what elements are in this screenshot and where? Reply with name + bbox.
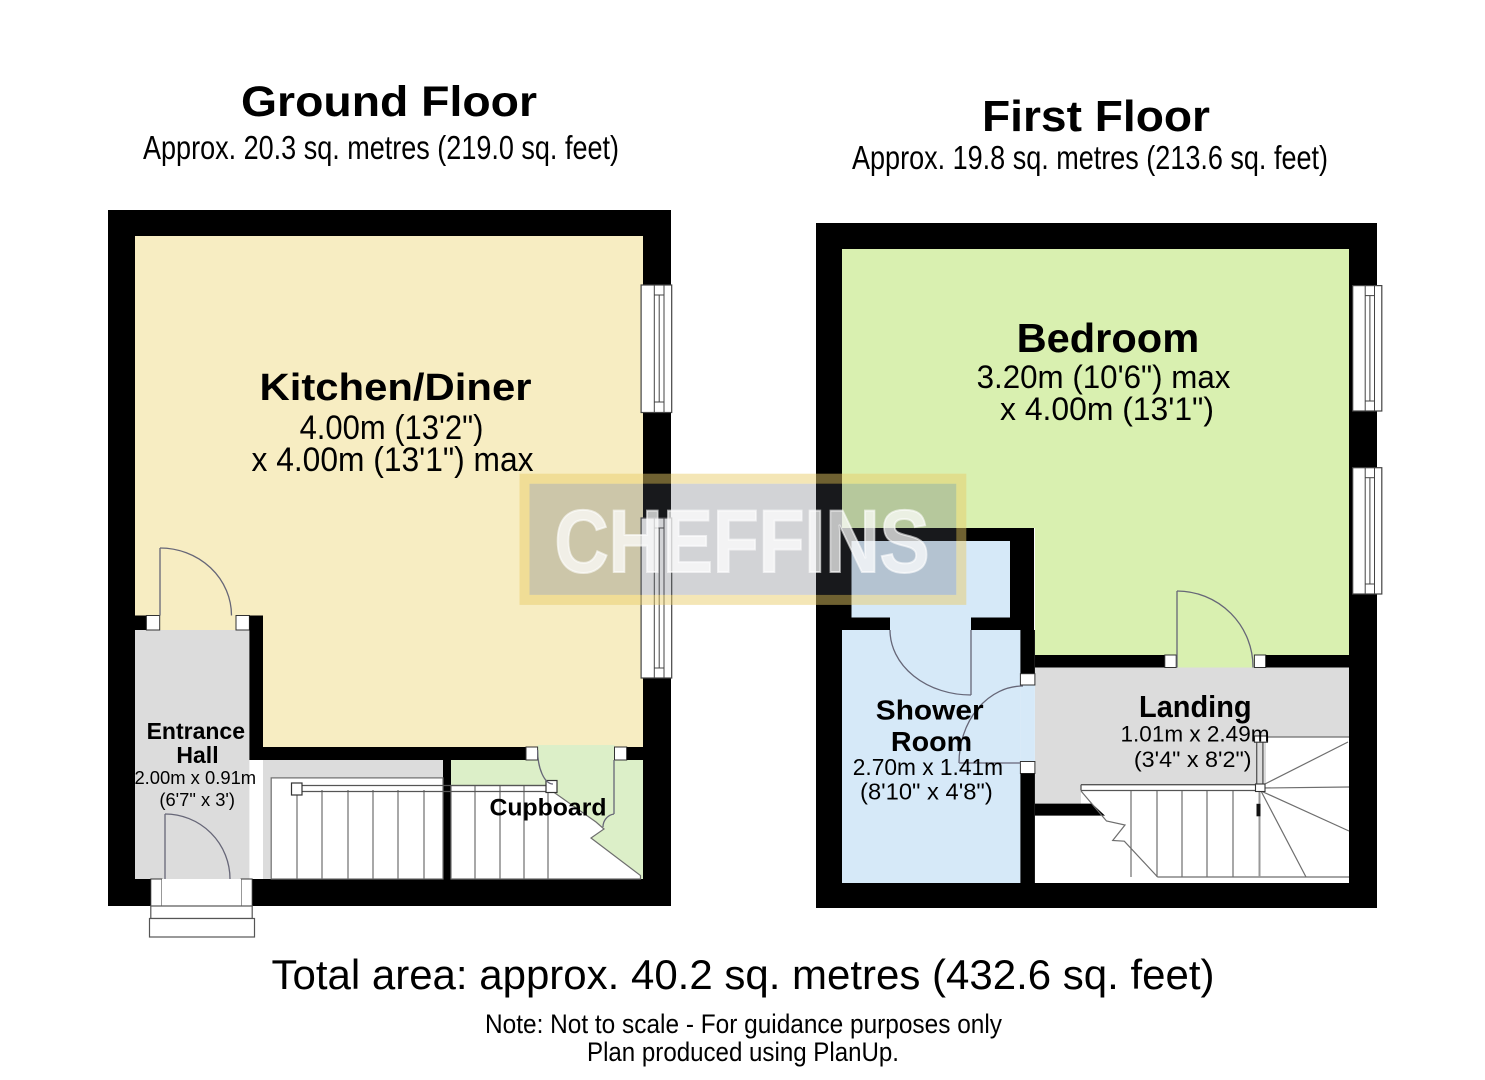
svg-text:x 4.00m (13'1"): x 4.00m (13'1") bbox=[1000, 391, 1214, 427]
svg-text:(8'10" x 4'8"): (8'10" x 4'8") bbox=[860, 779, 993, 805]
svg-text:Entrance: Entrance bbox=[147, 718, 245, 744]
svg-text:Total area: approx. 40.2 sq. m: Total area: approx. 40.2 sq. metres (432… bbox=[272, 951, 1215, 998]
svg-text:Landing: Landing bbox=[1139, 689, 1252, 724]
svg-text:First Floor: First Floor bbox=[982, 92, 1210, 141]
svg-text:Kitchen/Diner: Kitchen/Diner bbox=[260, 367, 532, 409]
svg-text:Hall: Hall bbox=[176, 742, 218, 768]
svg-text:Bedroom: Bedroom bbox=[1017, 315, 1200, 361]
svg-text:Shower: Shower bbox=[876, 695, 984, 726]
svg-text:2.70m x 1.41m: 2.70m x 1.41m bbox=[853, 754, 1003, 780]
svg-text:Room: Room bbox=[891, 726, 972, 757]
svg-text:Approx. 19.8 sq. metres (213.6: Approx. 19.8 sq. metres (213.6 sq. feet) bbox=[852, 139, 1328, 176]
svg-text:(3'4" x 8'2"): (3'4" x 8'2") bbox=[1134, 747, 1252, 772]
svg-text:3.20m (10'6") max: 3.20m (10'6") max bbox=[977, 359, 1231, 395]
svg-text:1.01m x 2.49m: 1.01m x 2.49m bbox=[1121, 721, 1270, 746]
svg-text:Cupboard: Cupboard bbox=[490, 795, 607, 822]
svg-text:x 4.00m (13'1") max: x 4.00m (13'1") max bbox=[252, 441, 534, 479]
svg-text:Note: Not to scale - For guida: Note: Not to scale - For guidance purpos… bbox=[485, 1009, 1003, 1039]
svg-text:Approx. 20.3 sq. metres (219.0: Approx. 20.3 sq. metres (219.0 sq. feet) bbox=[143, 129, 619, 166]
svg-text:(6'7" x 3'): (6'7" x 3') bbox=[159, 789, 235, 810]
svg-text:CHEFFINS: CHEFFINS bbox=[555, 491, 930, 591]
svg-text:Ground Floor: Ground Floor bbox=[241, 78, 537, 126]
svg-text:2.00m x 0.91m: 2.00m x 0.91m bbox=[134, 767, 256, 788]
svg-text:Plan produced using PlanUp.: Plan produced using PlanUp. bbox=[587, 1037, 899, 1067]
